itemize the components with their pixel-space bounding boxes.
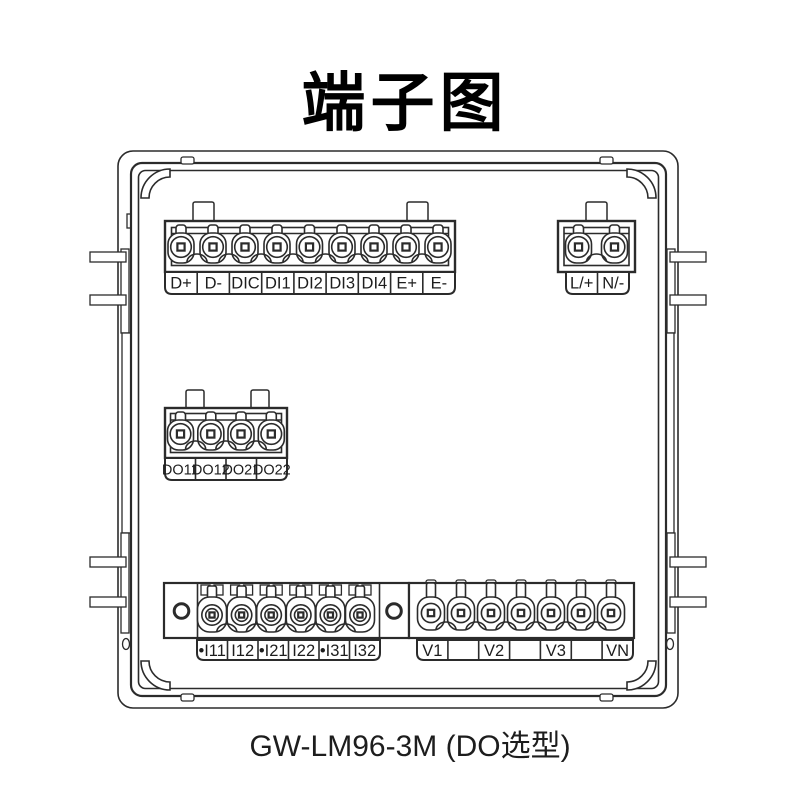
terminal-label-dplus: D+ <box>170 275 192 293</box>
terminal-label-di3: DI3 <box>329 275 355 293</box>
voltage-terminal-block: V1 V2 V3 VN <box>409 580 634 660</box>
terminal-label-v1: V1 <box>422 642 442 660</box>
comm-label-row: D+ D- DIC DI1 DI2 DI3 DI4 E+ E- <box>165 272 455 294</box>
power-label-row: L/+ N/- <box>566 272 629 294</box>
terminal-label-di2: DI2 <box>297 275 323 293</box>
terminal-label-neutral: N/- <box>602 275 624 293</box>
mount-hole <box>387 604 402 619</box>
terminal-label-line: L/+ <box>570 275 593 293</box>
page-title: 端子图 <box>302 67 509 139</box>
terminal-label-i32: I32 <box>353 642 376 660</box>
terminal-label-v2: V2 <box>484 642 504 660</box>
terminal-label-do22: DO22 <box>253 463 291 479</box>
left-mount-rail <box>90 214 134 650</box>
terminal-label-dic: DIC <box>231 275 260 293</box>
terminal-label-i22: I22 <box>292 642 315 660</box>
current-label-row: •I11 I12 •I21 I22 •I31 I32 <box>197 640 380 660</box>
terminal-label-vn: VN <box>606 642 629 660</box>
terminal-label-i21: •I21 <box>259 642 288 660</box>
terminal-diagram: 端子图 <box>0 0 800 800</box>
terminal-label-dminus: D- <box>205 275 222 293</box>
model-caption: GW-LM96-3M (DO选型) <box>249 730 570 763</box>
screw-terminals <box>168 225 451 263</box>
terminal-diagram-page: 端子图 <box>0 0 800 800</box>
terminal-label-di4: DI4 <box>362 275 388 293</box>
terminal-label-i11: •I11 <box>198 642 226 660</box>
do-label-row: DO11 DO12 DO21 DO22 <box>162 458 291 480</box>
current-terminal-block: •I11 I12 •I21 I22 •I31 I32 <box>164 583 409 660</box>
terminal-label-i31: •I31 <box>320 642 349 660</box>
terminal-label-eplus: E+ <box>396 275 417 293</box>
mount-hole <box>174 604 189 619</box>
terminal-label-di1: DI1 <box>265 275 291 293</box>
terminal-label-v3: V3 <box>546 642 566 660</box>
terminal-label-eminus: E- <box>431 275 448 293</box>
terminal-label-i12: I12 <box>231 642 254 660</box>
voltage-label-row: V1 V2 V3 VN <box>417 640 633 660</box>
